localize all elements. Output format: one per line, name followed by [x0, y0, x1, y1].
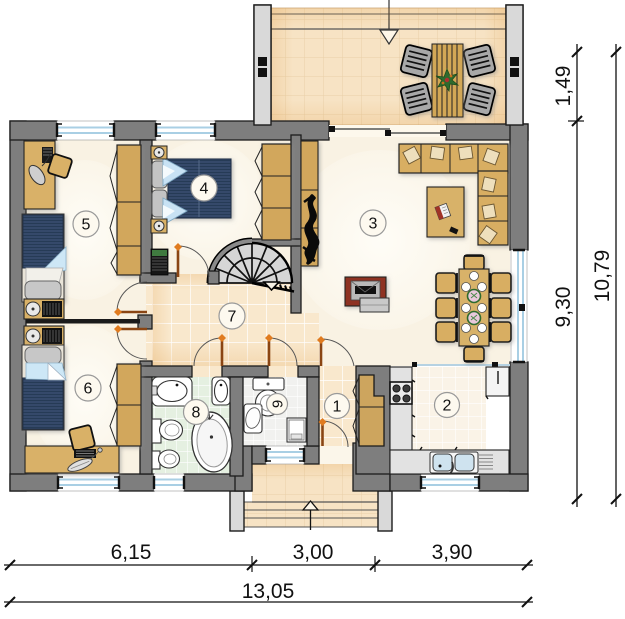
svg-text:13,05: 13,05: [242, 580, 295, 603]
svg-text:10,79: 10,79: [591, 250, 614, 303]
svg-text:3: 3: [369, 216, 378, 233]
svg-text:9,30: 9,30: [552, 287, 575, 328]
svg-text:1: 1: [333, 399, 342, 416]
svg-text:5: 5: [82, 217, 91, 234]
svg-text:1,49: 1,49: [552, 66, 575, 107]
svg-text:7: 7: [228, 309, 237, 326]
svg-text:6,15: 6,15: [111, 541, 152, 564]
svg-text:2: 2: [443, 398, 452, 415]
svg-text:3,00: 3,00: [293, 541, 334, 564]
svg-text:6: 6: [84, 381, 93, 398]
svg-text:9: 9: [270, 400, 287, 408]
svg-text:4: 4: [200, 181, 209, 198]
svg-text:8: 8: [192, 405, 201, 422]
svg-text:3,90: 3,90: [432, 541, 473, 564]
